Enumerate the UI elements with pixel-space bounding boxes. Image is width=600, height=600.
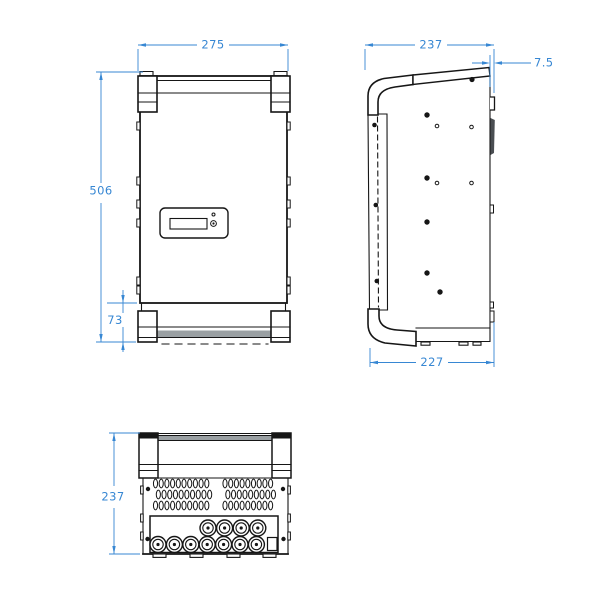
connector-pin <box>223 526 226 529</box>
front-bottom-bracket <box>138 303 290 344</box>
vent-slot <box>185 490 189 499</box>
vent-slot <box>168 490 172 499</box>
bottom-corner-bumper <box>368 309 416 346</box>
vent-slot <box>193 501 197 510</box>
vent-slot <box>240 479 244 488</box>
vent-slot <box>243 490 247 499</box>
side-bottom <box>368 309 490 346</box>
bottom-left-clamp <box>139 433 158 478</box>
vent-slot <box>176 479 180 488</box>
front-enclosure-outline <box>140 76 287 303</box>
dim-front-width-label: 275 <box>201 38 224 52</box>
vent-slot <box>269 501 273 510</box>
vent-slot <box>251 479 255 488</box>
vent-slot <box>165 479 169 488</box>
rear-edge <box>490 76 495 328</box>
vent-slot <box>208 490 212 499</box>
vent-slot <box>226 490 230 499</box>
vent-slot <box>199 479 203 488</box>
connector-pin <box>256 526 259 529</box>
side-top-edge <box>413 68 490 85</box>
rear-hook-tab <box>490 97 495 110</box>
vent-slot <box>162 490 166 499</box>
drawing-canvas: 275 506 73 <box>0 0 600 600</box>
rear-rail-bar <box>491 118 495 155</box>
vent-grid-right <box>223 479 276 510</box>
connector-pin <box>240 526 243 529</box>
connector-pin <box>189 543 192 546</box>
vent-slot <box>182 501 186 510</box>
vent-slot <box>263 501 267 510</box>
vent-slot <box>156 490 160 499</box>
connector-pin <box>156 543 159 546</box>
vent-slot <box>237 490 241 499</box>
vent-slot <box>223 501 227 510</box>
vent-slot <box>246 479 250 488</box>
vent-slot <box>257 479 261 488</box>
vent-slot <box>193 479 197 488</box>
bottom-view <box>139 433 291 557</box>
vent-slot <box>196 490 200 499</box>
vent-slot <box>173 490 177 499</box>
vent-slot <box>271 490 275 499</box>
vent-slot <box>246 501 250 510</box>
vent-grid-left <box>153 479 211 510</box>
dim-front-bracket-label: 73 <box>107 313 122 327</box>
front-top-right-clamp <box>271 76 290 112</box>
vent-slot <box>205 501 209 510</box>
vent-slot <box>260 490 264 499</box>
vent-slot <box>191 490 195 499</box>
connector-pin <box>222 543 225 546</box>
vent-slot <box>229 479 233 488</box>
vent-slot <box>263 479 267 488</box>
dim-side-bottom-depth-label: 227 <box>420 355 443 369</box>
vent-slot <box>232 490 236 499</box>
vent-slot <box>202 490 206 499</box>
vent-slot <box>188 501 192 510</box>
vent-slot <box>179 490 183 499</box>
led-indicator <box>212 213 215 216</box>
vent-slot <box>254 490 258 499</box>
vent-slot <box>171 501 175 510</box>
bottom-right-clamp <box>272 433 291 478</box>
display-panel <box>160 208 228 238</box>
vent-slot <box>171 479 175 488</box>
dim-side-rear-lip-label: 7.5 <box>534 56 554 70</box>
vent-slot <box>240 501 244 510</box>
vent-slot <box>165 501 169 510</box>
connector-pin <box>206 543 209 546</box>
vent-slot <box>249 490 253 499</box>
side-view <box>368 68 495 347</box>
bottom-dimensions: 237 <box>101 433 140 554</box>
vent-slot <box>269 479 273 488</box>
vent-slot <box>205 479 209 488</box>
dim-bottom-depth-label: 237 <box>101 490 124 504</box>
comm-port <box>268 538 278 551</box>
connector-pin <box>173 543 176 546</box>
front-view <box>137 72 290 345</box>
front-top-left-clamp <box>138 76 157 112</box>
bottom-bracket-strip <box>139 433 291 478</box>
vent-slot <box>266 490 270 499</box>
vent-slot <box>223 479 227 488</box>
vent-slot <box>182 479 186 488</box>
technical-drawing: 275 506 73 <box>0 0 600 600</box>
vent-slot <box>153 479 157 488</box>
vent-slot <box>153 501 157 510</box>
top-corner-bumper <box>368 75 413 115</box>
vent-slot <box>251 501 255 510</box>
connector-pin <box>238 543 241 546</box>
vent-slot <box>257 501 261 510</box>
front-rail <box>368 114 388 310</box>
side-panel-screws <box>424 112 473 294</box>
top-edge-screw <box>469 77 474 82</box>
lcd-window <box>170 219 207 230</box>
vent-slot <box>176 501 180 510</box>
connector-pin <box>206 526 209 529</box>
vent-slot <box>234 479 238 488</box>
connector-pin <box>255 543 258 546</box>
vent-slot <box>229 501 233 510</box>
dim-front-height-label: 506 <box>89 184 112 198</box>
function-button-dot <box>212 222 214 224</box>
dim-side-top-depth-label: 237 <box>419 38 442 52</box>
vent-slot <box>159 479 163 488</box>
vent-slot <box>159 501 163 510</box>
vent-slot <box>234 501 238 510</box>
vent-slot <box>188 479 192 488</box>
vent-slot <box>199 501 203 510</box>
